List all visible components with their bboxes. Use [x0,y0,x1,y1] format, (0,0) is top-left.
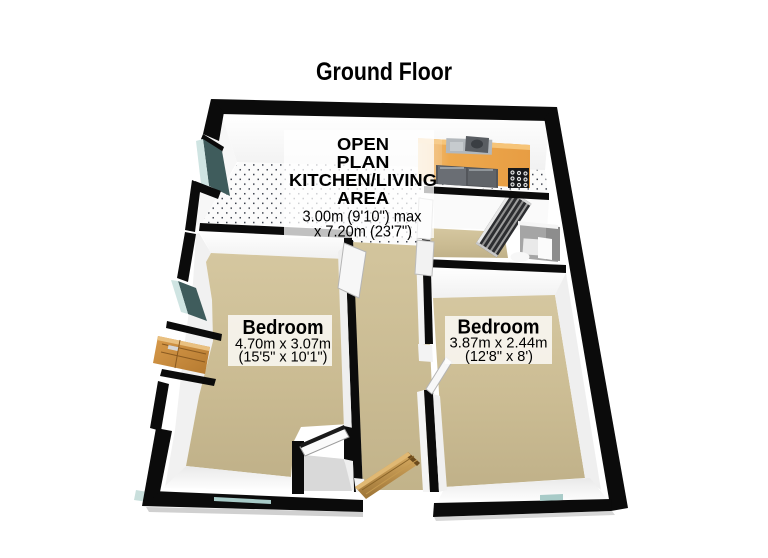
svg-text:KITCHEN/LIVING: KITCHEN/LIVING [289,170,437,190]
svg-text:(12'8" x 8'): (12'8" x 8') [465,349,533,365]
svg-text:Ground Floor: Ground Floor [316,58,452,86]
svg-text:PLAN: PLAN [337,152,390,172]
svg-text:x 7.20m (23'7"): x 7.20m (23'7") [314,224,412,241]
svg-text:(15'5" x 10'1"): (15'5" x 10'1") [239,350,328,366]
svg-text:AREA: AREA [337,188,389,208]
svg-text:OPEN: OPEN [337,134,389,154]
